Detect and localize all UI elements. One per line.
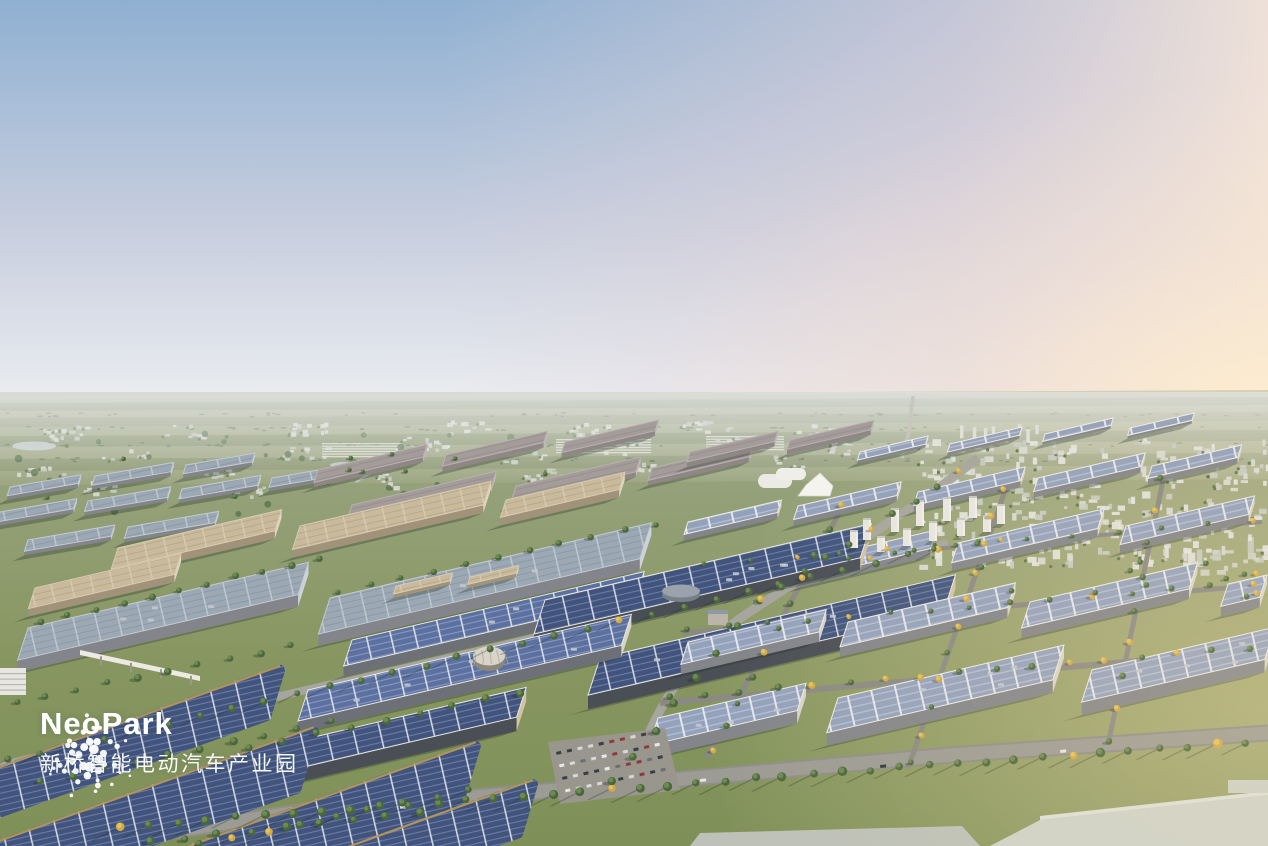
aerial-render: NeoPark 新桥智能电动汽车产业园	[0, 0, 1268, 846]
scene-canvas	[0, 0, 1268, 846]
sky	[0, 0, 1268, 412]
light-overlay	[634, 392, 1268, 846]
